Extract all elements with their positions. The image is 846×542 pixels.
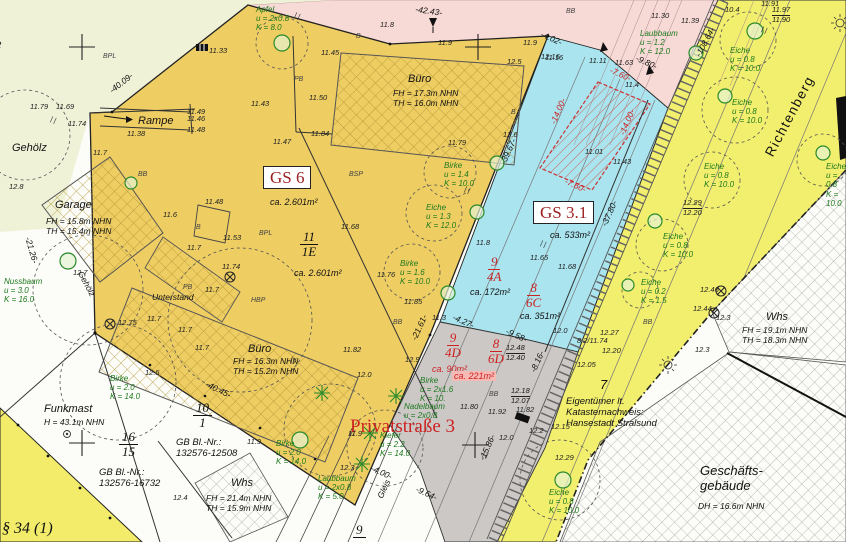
garage-label: Garage (55, 199, 92, 212)
spot-height: 11.11 (589, 57, 607, 66)
dim-37-80: -37.80- (600, 199, 620, 228)
dim-39-67: -39.67- (499, 137, 519, 166)
spot-height: 12.75 (118, 319, 137, 328)
spot-height: 11.45 (321, 49, 339, 58)
geschaeftsgebaeude-label: Geschäfts- gebäude (700, 464, 763, 494)
whs-bottom-label: Whs (231, 477, 253, 490)
dim-42-43: -42.43- (415, 5, 443, 18)
buero-top-heights: FH = 17.3m NHN TH = 16.0m NHN (393, 89, 458, 109)
dim-9-64: -9.64- (414, 485, 438, 503)
tree-kiefer: Kiefer u = 2.2 K = 14.0 (380, 431, 410, 459)
dim-40-09: -40.09- (108, 71, 135, 95)
parcel-10-1: 101 (193, 401, 212, 431)
tree-eiche-4: Eiche u = 0.8 K = 10.0 (704, 162, 734, 190)
spot-height: 11.30 (651, 12, 669, 21)
spot-height: 11.7 (147, 315, 161, 324)
parcel-8-6D-area: ca. 221m² (452, 371, 496, 381)
spot-height: 12.29 (555, 454, 574, 463)
parcel-9-4A: 94A (487, 255, 501, 285)
tree-laubbaum-2: Laubbaum u = 2x0.8 K = 5.0 (318, 474, 356, 502)
spot-height: 12.0 (357, 371, 372, 380)
spot-height: 11.6 (163, 211, 177, 220)
spot-height: 11.46 (187, 115, 205, 124)
spot-height: 12.6 (503, 131, 518, 140)
tree-eiche-6: Eiche u = 0.2 K = 1.5 (641, 278, 667, 306)
parcel-16-15: 1615 (119, 430, 138, 460)
spot-height: 11.79 (448, 139, 466, 148)
spot-height: 12.7 (73, 269, 88, 278)
parcel-9-bottom: 9 (353, 523, 366, 538)
code-hbp: HBP (251, 297, 265, 305)
spot-height: 12.0 (553, 327, 568, 336)
spot-height: 11.74 (68, 120, 86, 129)
spot-height: 11.43 (251, 100, 269, 109)
spot-height: 11.3 (432, 314, 446, 323)
spot-height: 12.0 (499, 434, 514, 443)
spot-height: 11.84 (311, 130, 329, 139)
spot-height: 11.69 (56, 103, 74, 112)
spot-height: 11.7 (93, 149, 107, 158)
spot-height: 11.47 (273, 138, 291, 147)
buero-top-label: Büro (408, 73, 431, 86)
spot-height: 11.9 (438, 39, 452, 48)
tree-eiche-3: Eiche u = 0.8 K = 10.0 (826, 162, 846, 208)
gleis-label: Gleis (376, 478, 393, 500)
spot-height: 12.3 (340, 464, 355, 473)
garage-heights: FH = 15.8m NHN TH = 15.4m NHN (46, 217, 111, 237)
gs6-area: ca. 2.601m² (270, 197, 318, 207)
tree-birke-3: Birke u = 2.0 K = 14.0 (110, 374, 140, 402)
boundary-tick: | | (463, 186, 471, 196)
spot-height: 11.39 (681, 17, 699, 26)
spot-height: 12.8 (9, 183, 24, 192)
spot-height: 11.4 (625, 81, 639, 90)
spot-height: 11.92 (488, 408, 506, 417)
tree-nussbaum: Nussbaum u = 3.0 K = 16.0 (4, 277, 42, 305)
spot-height: 12.4 (173, 494, 188, 503)
whs-right-label: Whs (766, 311, 788, 324)
code-bpl: BPL (259, 230, 272, 238)
spot-height: 11.50 (309, 94, 327, 103)
spot-height: 12.5 (145, 369, 160, 378)
cadastral-map: GB Bl.-Nr.: 132576-20432GB Bl.-Nr.: 1325… (0, 0, 846, 542)
code-bb: BB (566, 8, 575, 16)
code-pb: PB (183, 284, 192, 292)
baugb-note: § 34 (1) (2, 520, 53, 538)
tree-nadelbaum: Nadelbaum u = 2x0.8 (404, 402, 445, 420)
tree-birke-2: Birke u = 1.6 K = 10.0 (400, 259, 430, 287)
tree-apfel: Apfel u = 2x0.8 K = 8.0 (256, 5, 289, 33)
spot-height: 11.68 (558, 263, 576, 272)
spot-height: 11.63 (615, 59, 633, 68)
code-pb: PB (294, 76, 303, 84)
parcel-7: 7 (600, 378, 607, 393)
boundary-tick: | | (293, 12, 301, 22)
dim-9-80: -9.80- (634, 54, 658, 72)
spot-height: 12.15 (551, 423, 570, 432)
code-bb: BB (489, 391, 498, 399)
spot-height: 11.7 (178, 326, 192, 335)
parcel-9-4D: 94D (445, 331, 461, 361)
spot-height: 11.65 (530, 254, 548, 263)
pair-12-29: 12.2912.20 (683, 199, 702, 217)
whs-bottom-heights: FH = 21.4m NHN TH = 15.9m NHN (206, 494, 271, 514)
gb-blnr-20432: GB Bl.-Nr.: 132576-20432 (0, 30, 1, 52)
dim-40-45: -40.45- (204, 380, 232, 401)
tree-eiche-gs6: Eiche u = 1.3 K = 12.0 (426, 203, 456, 231)
gb-blnr-16732: GB Bl.-Nr.: 132576-16732 (99, 468, 160, 490)
spot-height: 11.7 (205, 286, 219, 295)
dim-red-14-00-right: -14.00- (618, 108, 638, 137)
spot-height: 12.05 (577, 361, 596, 370)
spot-height: 11.01 (585, 148, 603, 157)
spot-height: 11.38 (127, 130, 145, 139)
gs6-label: GS 6 (263, 166, 311, 189)
code-b: B (511, 109, 516, 117)
dim-4-00: -4.00- (369, 464, 393, 482)
gehoelz-label-1: Gehölz (12, 142, 47, 155)
spot-height: 11.53 (223, 234, 241, 243)
spot-height: 12.20 (602, 347, 621, 356)
spot-height: 11.8 (380, 21, 394, 30)
spot-height: 12.2 (529, 427, 544, 436)
parcel-8-6C-area: ca. 351m² (520, 311, 560, 321)
dim-red-14-00-left: -14.00- (549, 97, 569, 126)
spot-height: 8.2/11.74 (577, 337, 608, 346)
dim-red-7-60-bottom: -7.60- (563, 177, 587, 195)
parcel-8-6D: 86D (488, 337, 504, 367)
tree-eiche-7: Eiche u = 0.8 K = 10.0 (549, 488, 579, 516)
boundary-tick: | | (49, 116, 57, 126)
spot-height: 10.4 (725, 6, 740, 15)
dim-108-64: -108.64- (694, 26, 717, 59)
tree-birke-5: Birke u = 2x1.6 K = 10. (420, 376, 453, 404)
spot-height: 11.33 (209, 47, 227, 56)
spot-height: 11.82 (343, 346, 361, 355)
spot-height: 11.48 (205, 198, 223, 207)
spot-height: 11.82 (516, 406, 534, 415)
code-b: B (356, 33, 361, 41)
richtenberg-street: Richtenberg (762, 73, 818, 159)
parcel-8-6C: 86C (526, 281, 541, 311)
tree-birke-1: Birke u = 1.4 K = 10.0 (444, 161, 474, 189)
spot-height: 12.44 (693, 305, 712, 314)
map-labels-layer: GB Bl.-Nr.: 132576-20432GB Bl.-Nr.: 1325… (0, 0, 846, 542)
pair-12-18: 12.1812.07 (511, 387, 530, 405)
funkmast-height: H = 43.1m NHN (44, 418, 104, 428)
code-bsp: BSP (349, 171, 363, 179)
boundary-tick: | | (760, 26, 768, 36)
buero-bottom-heights: FH = 16.3m NHN TH = 15.2m NHN (233, 357, 298, 377)
tree-eiche-1: Eiche u = 0.8 K = 10.0 (730, 46, 760, 74)
pair-11-97: 11.9711.90 (772, 6, 790, 24)
buero-bottom-label: Büro (248, 343, 271, 356)
dim-21-61: -21.61- (410, 313, 430, 342)
whs-right-heights: FH = 19.1m NHN TH = 18.3m NHN (742, 326, 807, 346)
spot-height: 11.9 (247, 438, 261, 447)
spot-height: 11.85 (404, 298, 422, 307)
spot-height: 12.5 (507, 58, 522, 67)
pair-12-48: 12.4812.40 (506, 344, 525, 362)
tree-laubbaum-1: Laubbaum u = 1.2 K = 12.0 (640, 29, 678, 57)
spot-height: 11.74 (222, 263, 240, 272)
spot-height: 12.9 (405, 356, 420, 365)
dim-4-02: -4.02- (539, 30, 563, 48)
code-bb: BB (643, 319, 652, 327)
parcel-11-1E: 111E (300, 230, 318, 260)
spot-height: 12.16 (541, 53, 560, 62)
code-bb: BB (138, 171, 147, 179)
spot-height: 11.48 (187, 126, 205, 135)
spot-height: 11.91 (761, 0, 779, 9)
tree-eiche-5: Eiche u = 0.8 K = 10.0 (663, 232, 693, 260)
spot-height: 12.3 (716, 314, 731, 323)
spot-height: 11.9 (523, 39, 537, 48)
gs31-label: GS 3.1 (533, 201, 594, 224)
parcel-11-1E-area: ca. 2.601m² (294, 268, 342, 278)
unterstand-label: Unterstand (152, 293, 194, 303)
geschaeftsgebaeude-dh: DH = 16.6m NHN (698, 502, 764, 512)
code-bpl: BPL (103, 53, 116, 61)
code-b: B (196, 224, 201, 232)
spot-height: 11.79 (30, 103, 48, 112)
gb-blnr-12508: GB Bl.-Nr.: 132576-12508 (176, 438, 237, 460)
dim-21-26: -21.26- (23, 236, 40, 265)
spot-height: 11.68 (341, 223, 359, 232)
spot-height: 11.8 (476, 239, 490, 248)
spot-height: 12.3 (695, 346, 710, 355)
tree-birke-4: Birke u = 2.0 K = 14.0 (276, 439, 306, 467)
dim-8-16: -8.16- (529, 350, 547, 374)
spot-height: 11.43 (613, 158, 631, 167)
spot-height: 11.80 (460, 403, 478, 412)
spot-height: 12.46 (700, 286, 719, 295)
gs31-area: ca. 533m² (550, 230, 590, 240)
code-bb: BB (393, 319, 402, 327)
dim-4-27: -4.27- (451, 313, 475, 331)
funkmast-label: Funkmast (44, 403, 92, 416)
spot-height: 11.76 (377, 271, 395, 280)
owner-note: Eigentümer lt. Katasternachweis: Hansest… (566, 397, 657, 430)
rampe-label: Rampe (138, 115, 173, 128)
boundary-tick: | | (539, 240, 547, 250)
spot-height: 11.7 (195, 344, 209, 353)
spot-height: 11.7 (187, 244, 201, 253)
parcel-9-4A-area: ca. 172m² (470, 287, 510, 297)
tree-eiche-2: Eiche u = 0.8 K = 10.0 (732, 98, 762, 126)
